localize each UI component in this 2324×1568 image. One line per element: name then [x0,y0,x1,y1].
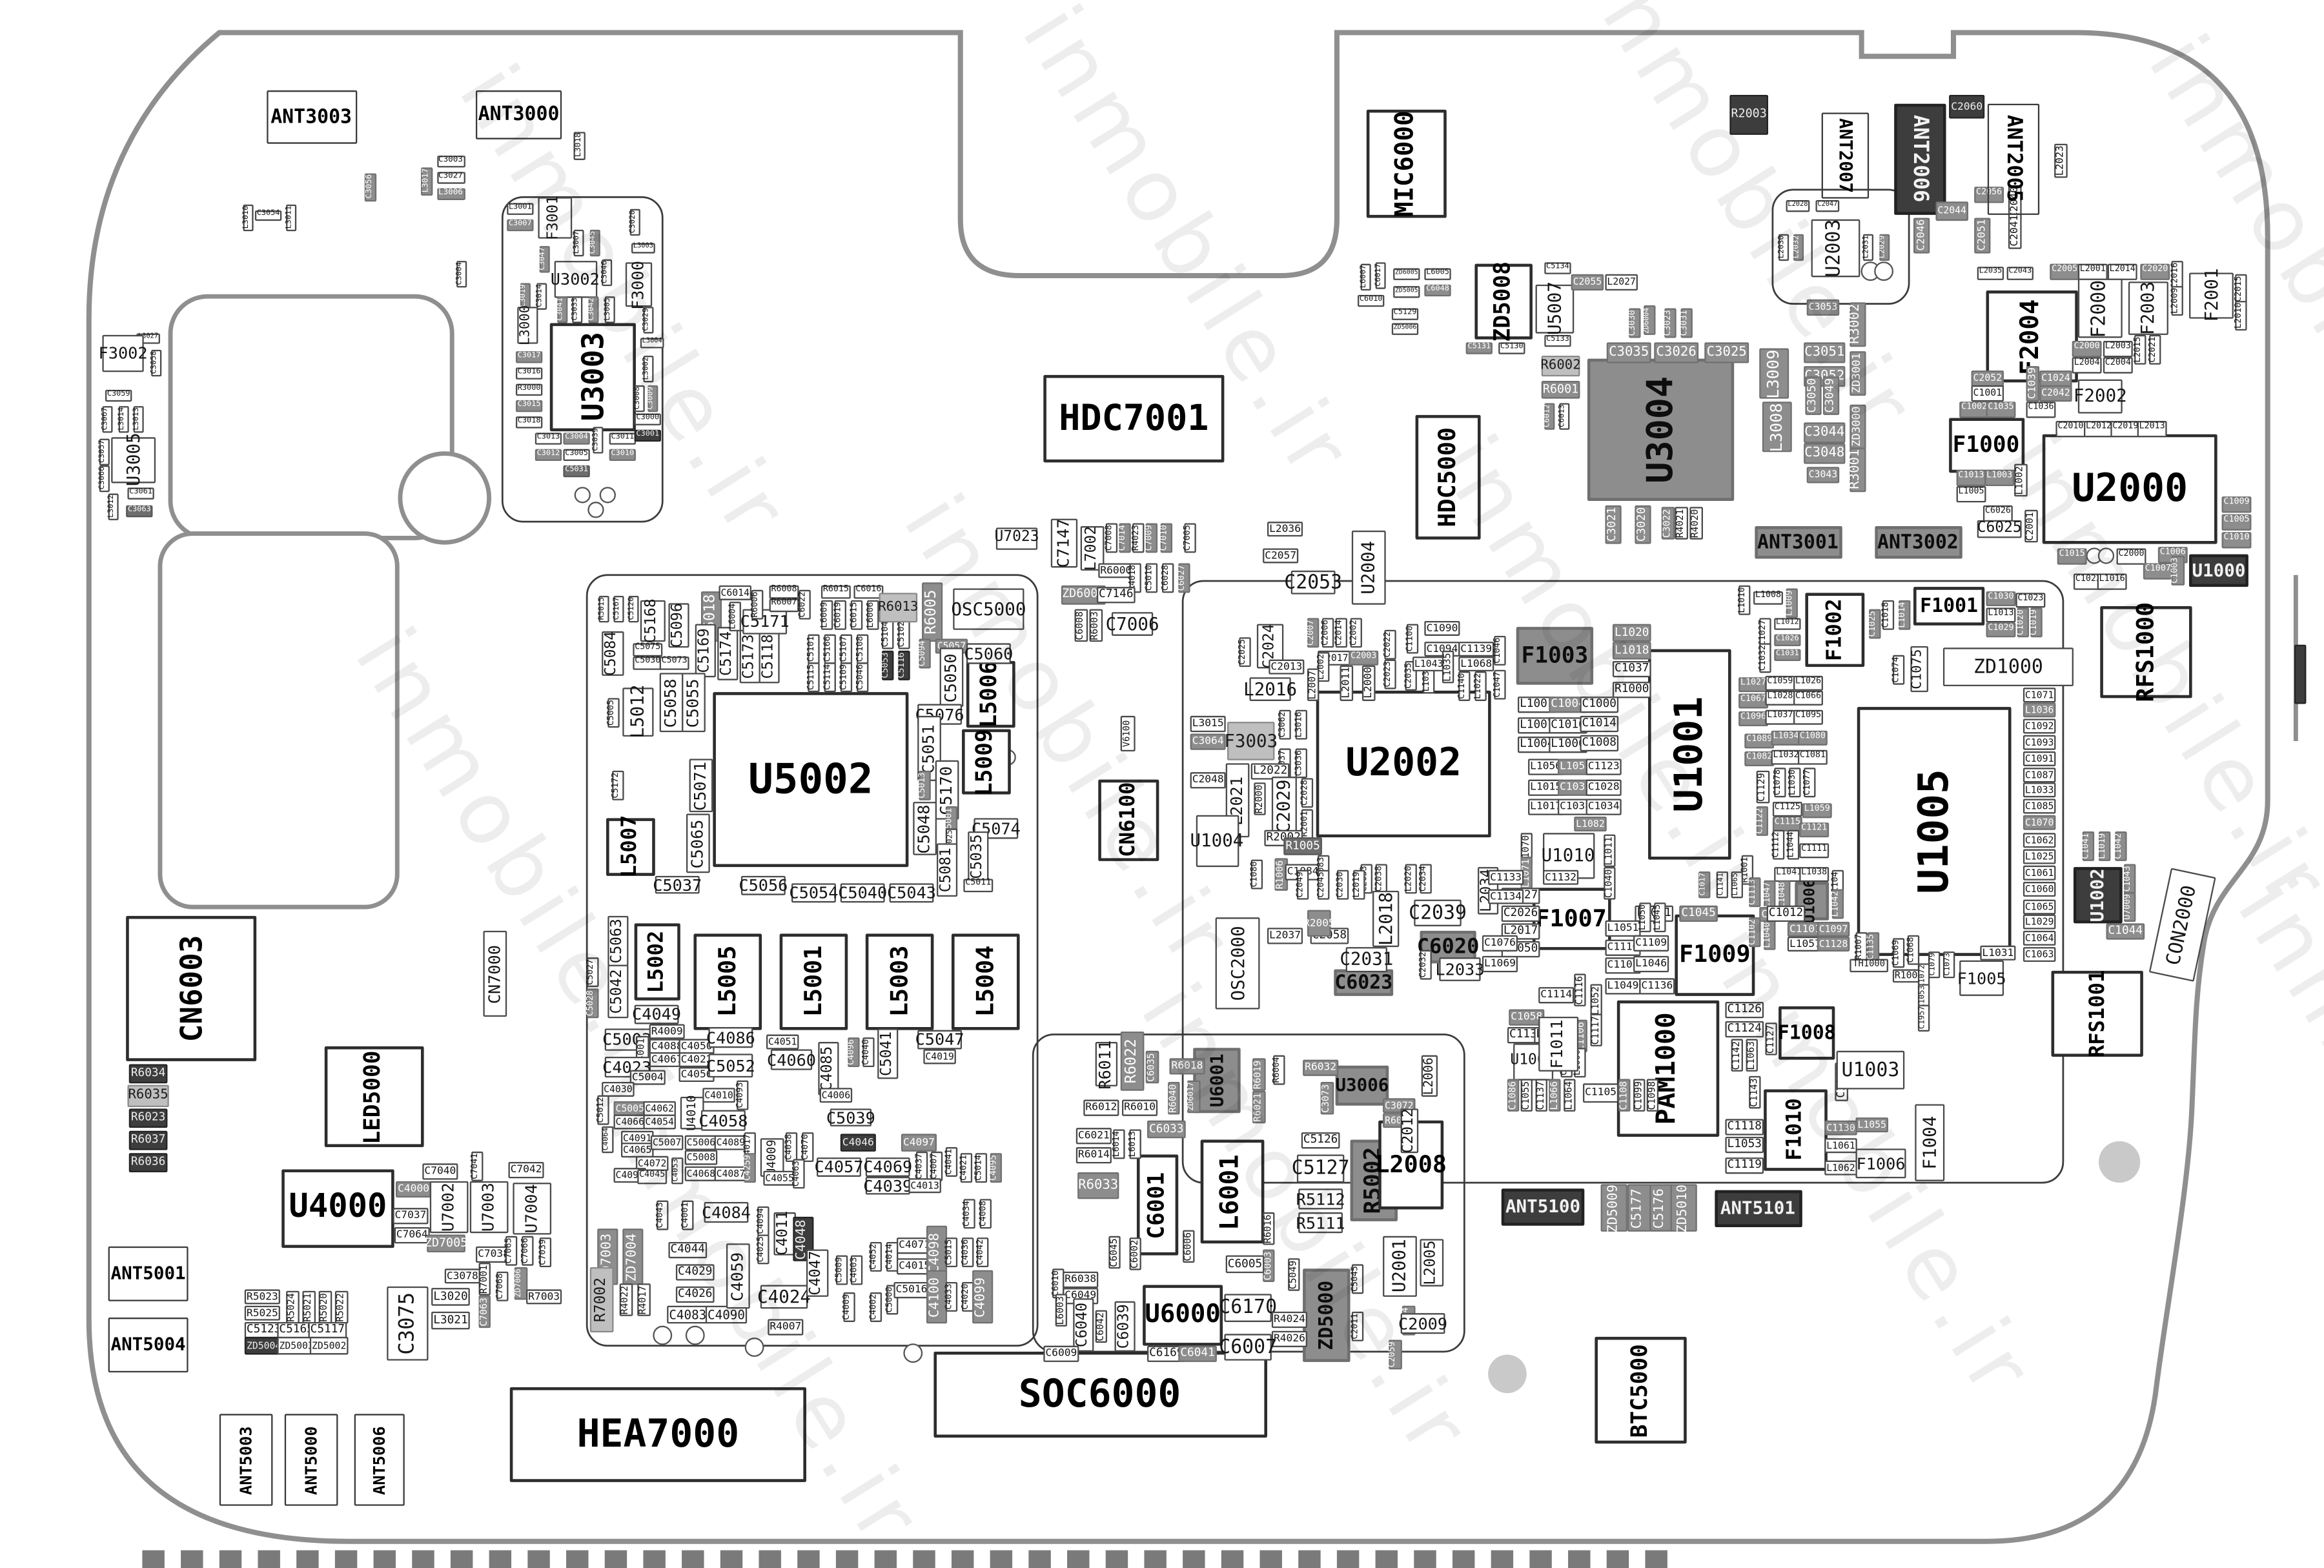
component-r6021: R6021 [1252,1091,1265,1124]
component-u1000: U1000 [2189,555,2248,587]
component-c6025: C6025 [1977,520,2022,538]
component-label: C5015 [947,1239,955,1265]
component-label: L1051 [1607,922,1639,933]
component-c5004: C5004 [630,1070,666,1085]
component-label: C6007 [1219,1338,1277,1357]
component-label: R6022 [1125,1039,1140,1083]
component-l2030: L2030 [1778,234,1788,261]
component-c2012: C2012 [1401,1108,1419,1153]
component-label: C3025 [1707,346,1747,360]
component-label: L5009 [975,728,997,795]
component-label: L2001 [2080,267,2106,275]
component-c1018: C1018 [1882,600,1894,630]
component-label: C4044 [671,1244,705,1256]
component-label: ANT5004 [111,1336,186,1354]
component-l2001: L2001 [2078,263,2108,280]
component-c2000: C2000 [2072,340,2102,356]
component-c5042: C5042 [607,965,628,1019]
component-label: C1119 [1728,1159,1762,1171]
component-c4041: C4041 [946,1147,957,1177]
component-label: L6006 [869,602,877,628]
component-c4051: C4051 [766,1035,799,1050]
component-c2060: C2060 [1949,95,1984,119]
component-label: C1093 [2025,738,2054,748]
component-label: L3007 [574,232,582,255]
component-label: C4086 [706,1030,755,1046]
component-label: U1005 [1913,769,1955,894]
component-r6040: R6040 [1168,1082,1179,1115]
component-r2000: R2000 [1254,782,1265,815]
component-label: C1075 [1913,648,1926,688]
component-c1067: C1067 [1738,693,1768,708]
component-label: C3054 [257,211,280,219]
component-label: R6038 [1065,1274,1096,1284]
component-cn6003: CN6003 [126,916,256,1061]
component-label: C3003 [438,158,463,166]
component-label: L1027 [1740,680,1766,689]
component-c1076: C1076 [1482,935,1518,951]
component-c1007: C1007 [2143,562,2173,578]
component-c1020: C1020 [2017,607,2029,637]
component-c1044: C1044 [2106,922,2145,939]
component-l6005: L6005 [1424,269,1451,280]
component-c3020: C3020 [1634,505,1650,544]
component-label: L1036 [2025,705,2054,715]
component-label: C1108 [1620,1081,1629,1110]
component-u1001: U1001 [1648,649,1731,860]
component-label: L1018 [1615,645,1649,657]
component-f2001: F2001 [2189,272,2234,318]
component-c5013: C5013 [919,771,930,800]
component-label: R6016 [1264,1214,1274,1243]
component-label: L3002 [644,358,651,381]
component-l2033: L2033 [1439,957,1480,981]
component-c3030: C3030 [1629,309,1640,338]
component-label: C5118 [762,635,777,679]
component-c4000: C4000 [396,1181,431,1197]
screw-hole [1488,1354,1527,1393]
component-c1086: C1086 [1507,1079,1519,1112]
component-label: C4098 [930,1232,944,1272]
component-zd7004: ZD7004 [622,1228,643,1285]
component-l2004: L2004 [2072,356,2102,372]
component-label: R6023 [131,1112,165,1123]
component-c1143: C1143 [1749,1076,1760,1109]
component-label: C5016 [896,1284,928,1294]
component-label: U1000 [2192,562,2245,580]
component-label: R6002 [1540,360,1580,373]
component-label: C1080 [1252,862,1261,888]
component-label: L5002 [646,931,667,993]
component-label: C1035 [1988,405,2013,413]
component-c1017: C1017 [1698,871,1710,898]
edge-connector-pad [296,1551,318,1568]
component-l1053: L1053 [1725,1136,1764,1152]
component-c1037: C1037 [1613,660,1651,677]
component-label: ZD6004 [1646,307,1653,333]
component-c4068: C4068 [685,1166,718,1181]
component-label: C4049 [632,1006,681,1022]
component-c4003: C4003 [851,1256,862,1285]
component-label: C1024 [2041,373,2070,383]
component-label: C1071 [2025,690,2054,700]
component-u1002: U1002 [2073,867,2122,923]
component-label: L6013 [1131,1131,1139,1157]
component-r3000: R3000 [516,384,542,396]
component-label: C2007 [1309,620,1318,646]
component-label: L1050 [1641,904,1649,930]
component-label: C4085 [821,1046,836,1091]
component-c3029: C3029 [642,307,653,333]
component-c1132: C1132 [1543,870,1578,885]
component-l1038: L1038 [1799,867,1829,882]
component-c3042: C3042 [587,296,598,323]
component-c1136: C1136 [1639,977,1675,993]
component-label: L2022 [1253,765,1287,777]
component-label: L2002 [1320,654,1328,680]
component-label: L5007 [620,815,640,878]
component-label: C4083 [669,1308,706,1321]
component-label: C4013 [910,1181,939,1190]
component-c4001: C4001 [682,1201,693,1230]
component-label: ZD5005 [1395,289,1418,295]
component-soc6000: SOC6000 [933,1352,1267,1438]
component-label: C1010 [2223,535,2249,544]
component-label: U1010 [1542,846,1595,864]
component-label: U7023 [994,531,1039,545]
component-label: R5015 [600,598,607,621]
component-label: C7014 [1121,525,1129,551]
component-c3010: C3010 [609,449,636,461]
component-c6003: C6003 [1263,1249,1274,1282]
component-label: C5133 [1546,337,1569,345]
edge-connector-pad [759,1551,781,1568]
component-label: U2004 [1359,541,1377,595]
component-l1028: L1028 [1765,691,1795,706]
component-l3018: L3018 [574,131,586,159]
component-r4026: R4026 [1272,1330,1307,1347]
component-c1129: C1129 [1755,771,1769,804]
component-label: C2049 [1298,872,1307,898]
component-label: R4022 [620,1285,630,1314]
component-cn7000: CN7000 [483,931,507,1017]
component-c2044: C2044 [1935,201,1968,220]
component-label: L1046 [1635,958,1667,968]
component-label: C1137 [1536,1081,1546,1110]
component-label: R5024 [287,1293,297,1322]
component-l2002: L2002 [1318,652,1329,682]
component-c5028: C5028 [587,988,598,1018]
component-label: L2033 [1435,961,1484,977]
component-label: C5102 [900,622,908,647]
component-c3061: C3061 [127,487,154,499]
component-r6012: R6012 [1083,1099,1119,1115]
component-c4066: C4066 [614,1115,647,1130]
component-label: L3013 [134,408,142,431]
component-label: C5005 [615,1104,644,1114]
component-label: C6002 [1130,1239,1140,1268]
component-label: L1049 [1607,981,1639,991]
component-c6023: C6023 [1334,970,1393,996]
component-c1957: C1957 [1918,1005,1930,1032]
component-label: C1007 [2145,566,2171,575]
component-label: C5012 [599,1097,607,1123]
component-label: C5129 [1394,311,1417,318]
component-label: L1040 [1766,922,1774,948]
component-c1080: C1080 [1798,731,1828,746]
component-l1063: L1063 [1746,1039,1758,1072]
component-r2003: R2003 [1729,94,1768,134]
component-label: C5115 [810,664,818,690]
component-label: C1027 [1761,620,1769,646]
component-label: R7001 [480,1265,489,1294]
component-zd5002: ZD5002 [310,1337,349,1355]
component-c5094: C5094 [919,639,930,669]
component-c2007: C2007 [1307,618,1319,647]
component-label: C6048 [1426,287,1449,294]
component-label: U5007 [1546,281,1564,335]
component-label: C7009 [1147,525,1156,551]
component-label: L2019 [1355,872,1363,898]
component-c3003: C3003 [436,156,465,167]
component-f1002: F1002 [1805,593,1864,667]
component-u7023: U7023 [996,527,1037,549]
component-label: C5063 [611,919,626,963]
component-label: C7041 [473,1154,482,1179]
component-label: C4006 [822,1090,851,1100]
component-c1096: C1096 [1738,711,1768,726]
component-label: ZD5004 [247,1341,281,1350]
component-label: RFS1001 [2087,970,2108,1057]
component-label: F2004 [2019,298,2044,374]
component-label: C2019 [2112,424,2138,433]
component-label: C6026 [1985,509,2011,517]
component-c5101: C5101 [808,635,819,664]
component-label: C1132 [1545,872,1576,882]
component-c7037: C7037 [392,1207,428,1223]
component-label: C5101 [810,636,818,662]
component-c6009: C6009 [1043,1345,1079,1361]
component-label: L1047 [1766,882,1774,908]
component-c6021: C6021 [1076,1127,1112,1143]
component-label: C1058 [1511,1012,1542,1022]
component-c2011: C2011 [1352,1312,1363,1341]
component-c1061: C1061 [2023,866,2056,881]
component-label: L2006 [1423,1057,1435,1095]
component-label: ANT3002 [1877,533,1959,552]
component-c6027: C6027 [1178,563,1190,593]
component-c7147: C7147 [1051,518,1077,567]
edge-connector-pad [1568,1551,1590,1568]
component-label: OSC5000 [951,600,1026,618]
edge-connector-pad [1607,1551,1629,1568]
component-label: L2029 [1880,236,1888,260]
component-label: L1037 [1767,713,1793,722]
component-label: C4087 [717,1169,746,1179]
component-label: L1020 [1615,627,1649,638]
component-label: F3001 [547,196,562,240]
component-label: U5002 [748,759,873,800]
component-label: C5056 [739,877,788,893]
component-label: C1001 [1973,388,2003,398]
component-label: L1059 [1804,806,1830,815]
component-label: ZD7005 [425,1237,467,1249]
component-label: C6022 [800,592,809,618]
component-c2031: C2031 [1346,946,1387,972]
component-label: U3003 [578,332,607,421]
component-label: C5169 [698,628,713,673]
component-c3050: C3050 [1804,376,1820,415]
component-c6019: C6019 [835,600,846,630]
component-label: C3041 [558,298,566,321]
component-label: F1009 [1679,942,1751,966]
component-c3013: C3013 [535,433,562,444]
component-c1093: C1093 [2023,735,2056,750]
component-c4100: C4100 [926,1270,947,1324]
component-r6022: R6022 [1121,1032,1145,1091]
component-label: L5001 [802,946,826,1017]
component-label: C5010 [1147,565,1156,591]
component-c5011: C5011 [963,878,993,891]
component-label: C1139 [1460,644,1492,654]
component-label: ANT5003 [238,1425,254,1494]
component-label: C5109 [842,664,850,690]
component-label: V6100 [1123,720,1132,747]
component-c5126: C5126 [1301,1132,1340,1148]
component-c5129: C5129 [1392,309,1418,320]
component-label: C1113 [1751,879,1759,905]
component-c3023: C3023 [1664,309,1676,338]
component-label: F1000 [1953,434,2020,456]
component-c5167: C5167 [613,596,623,622]
component-r5111: R5111 [1298,1212,1343,1233]
component-c5065: C5065 [686,813,710,873]
component-label: C4046 [842,1137,874,1148]
component-c4033: C4033 [946,1282,957,1312]
component-l1011: L1011 [1604,835,1615,868]
component-c6007: C6007 [1224,1334,1271,1360]
component-c1141: C1141 [1717,871,1728,898]
component-label: C2011 [1353,1314,1361,1339]
component-label: R5020 [320,1293,329,1322]
component-label: ZD5002 [312,1341,346,1350]
component-label: L3010 [243,207,251,230]
component-u7003: U7003 [470,1181,509,1232]
component-label: R6035 [128,1088,168,1102]
edge-connector-pad [451,1551,473,1568]
component-label: R4026 [1274,1333,1305,1343]
component-r3002: R3002 [1849,302,1865,347]
component-c4010: C4010 [702,1088,735,1103]
component-c5015: C5015 [946,1237,957,1267]
component-label: C2020 [2142,267,2168,275]
component-label: C4064 [604,1128,611,1152]
component-r4021: R4021 [1674,507,1687,540]
component-label: ANT2006 [1909,115,1930,202]
component-label: R6010 [1124,1102,1156,1112]
component-c3020: C3020 [629,209,640,236]
component-r5112: R5112 [1298,1188,1343,1209]
component-label: C5046 [859,664,867,690]
component-label: C5030 [635,658,660,667]
component-c3053: C3053 [1807,299,1840,315]
component-label: C4041 [947,1149,955,1175]
component-label: BTC5000 [1629,1343,1651,1437]
component-c5005: C5005 [607,698,619,728]
component-c4086: C4086 [708,1027,753,1048]
component-label: C5058 [663,678,679,727]
component-label: L3016 [1297,712,1305,738]
component-c3044: C3044 [1804,422,1845,443]
component-l2015: L2015 [2134,335,2146,365]
component-r6036: R6036 [129,1152,168,1172]
edge-connector-pad [1337,1551,1359,1568]
component-label: C2053 [1284,573,1342,592]
component-label: L3009 [1766,349,1782,398]
component-c5047: C5047 [917,1030,962,1049]
edge-connector-pad [527,1551,549,1568]
component-label: C1070 [2025,818,2054,828]
component-label: C5174 [720,631,735,676]
component-label: C1062 [2025,835,2054,845]
component-label: C4033 [947,1284,955,1310]
component-ant5004: ANT5004 [108,1317,189,1372]
component-c5134: C5134 [1544,262,1571,274]
component-label: L2003 [2105,344,2131,352]
component-label: C6001 [1147,1172,1168,1239]
component-f1000: F1000 [1948,417,2024,472]
component-label: MIC6000 [1394,110,1419,216]
component-c5030: C5030 [633,656,662,669]
component-label: C3066 [100,467,108,491]
component-label: U3002 [551,270,600,287]
component-label: R3000 [518,386,541,394]
edge-connector-pad [1067,1551,1089,1568]
component-label: C2038 [1377,866,1385,891]
component-label: F1010 [1784,1098,1805,1161]
component-label: R6012 [1085,1102,1117,1112]
component-c2052: C2052 [1972,370,2004,386]
component-label: L1022 [1476,673,1485,699]
edge-connector-pad [643,1551,665,1568]
component-u5002: U5002 [713,692,908,867]
component-label: C5037 [653,877,702,893]
component-ant5003: ANT5003 [219,1414,273,1505]
component-c5114: C5114 [824,662,836,692]
component-c5054: C5054 [791,882,836,902]
component-label: L1057 [1789,939,1821,949]
edge-connector-pad [952,1551,973,1568]
component-c2049: C2049 [1297,870,1309,900]
component-label: C1140 [1460,673,1469,699]
component-label: C4045 [639,1172,665,1181]
component-c3045: C3045 [589,230,600,256]
component-label: C1065 [2025,902,2054,912]
component-label: F1006 [1856,1156,1905,1172]
component-r5023: R5023 [245,1289,280,1304]
component-label: U4009 [766,1139,778,1175]
component-label: C1143 [1750,1078,1760,1107]
component-c4008: C4008 [980,1199,992,1228]
edge-connector-pad [797,1551,819,1568]
component-c2029: C2029 [1271,776,1296,837]
component-label: L1010 [1740,587,1749,613]
component-c2009: C2009 [1401,1313,1445,1334]
component-label: C6045 [1110,1238,1119,1267]
component-c1097: C1097 [1817,922,1850,937]
component-c4039: C4039 [866,1177,910,1195]
component-label: L3021 [433,1315,467,1327]
